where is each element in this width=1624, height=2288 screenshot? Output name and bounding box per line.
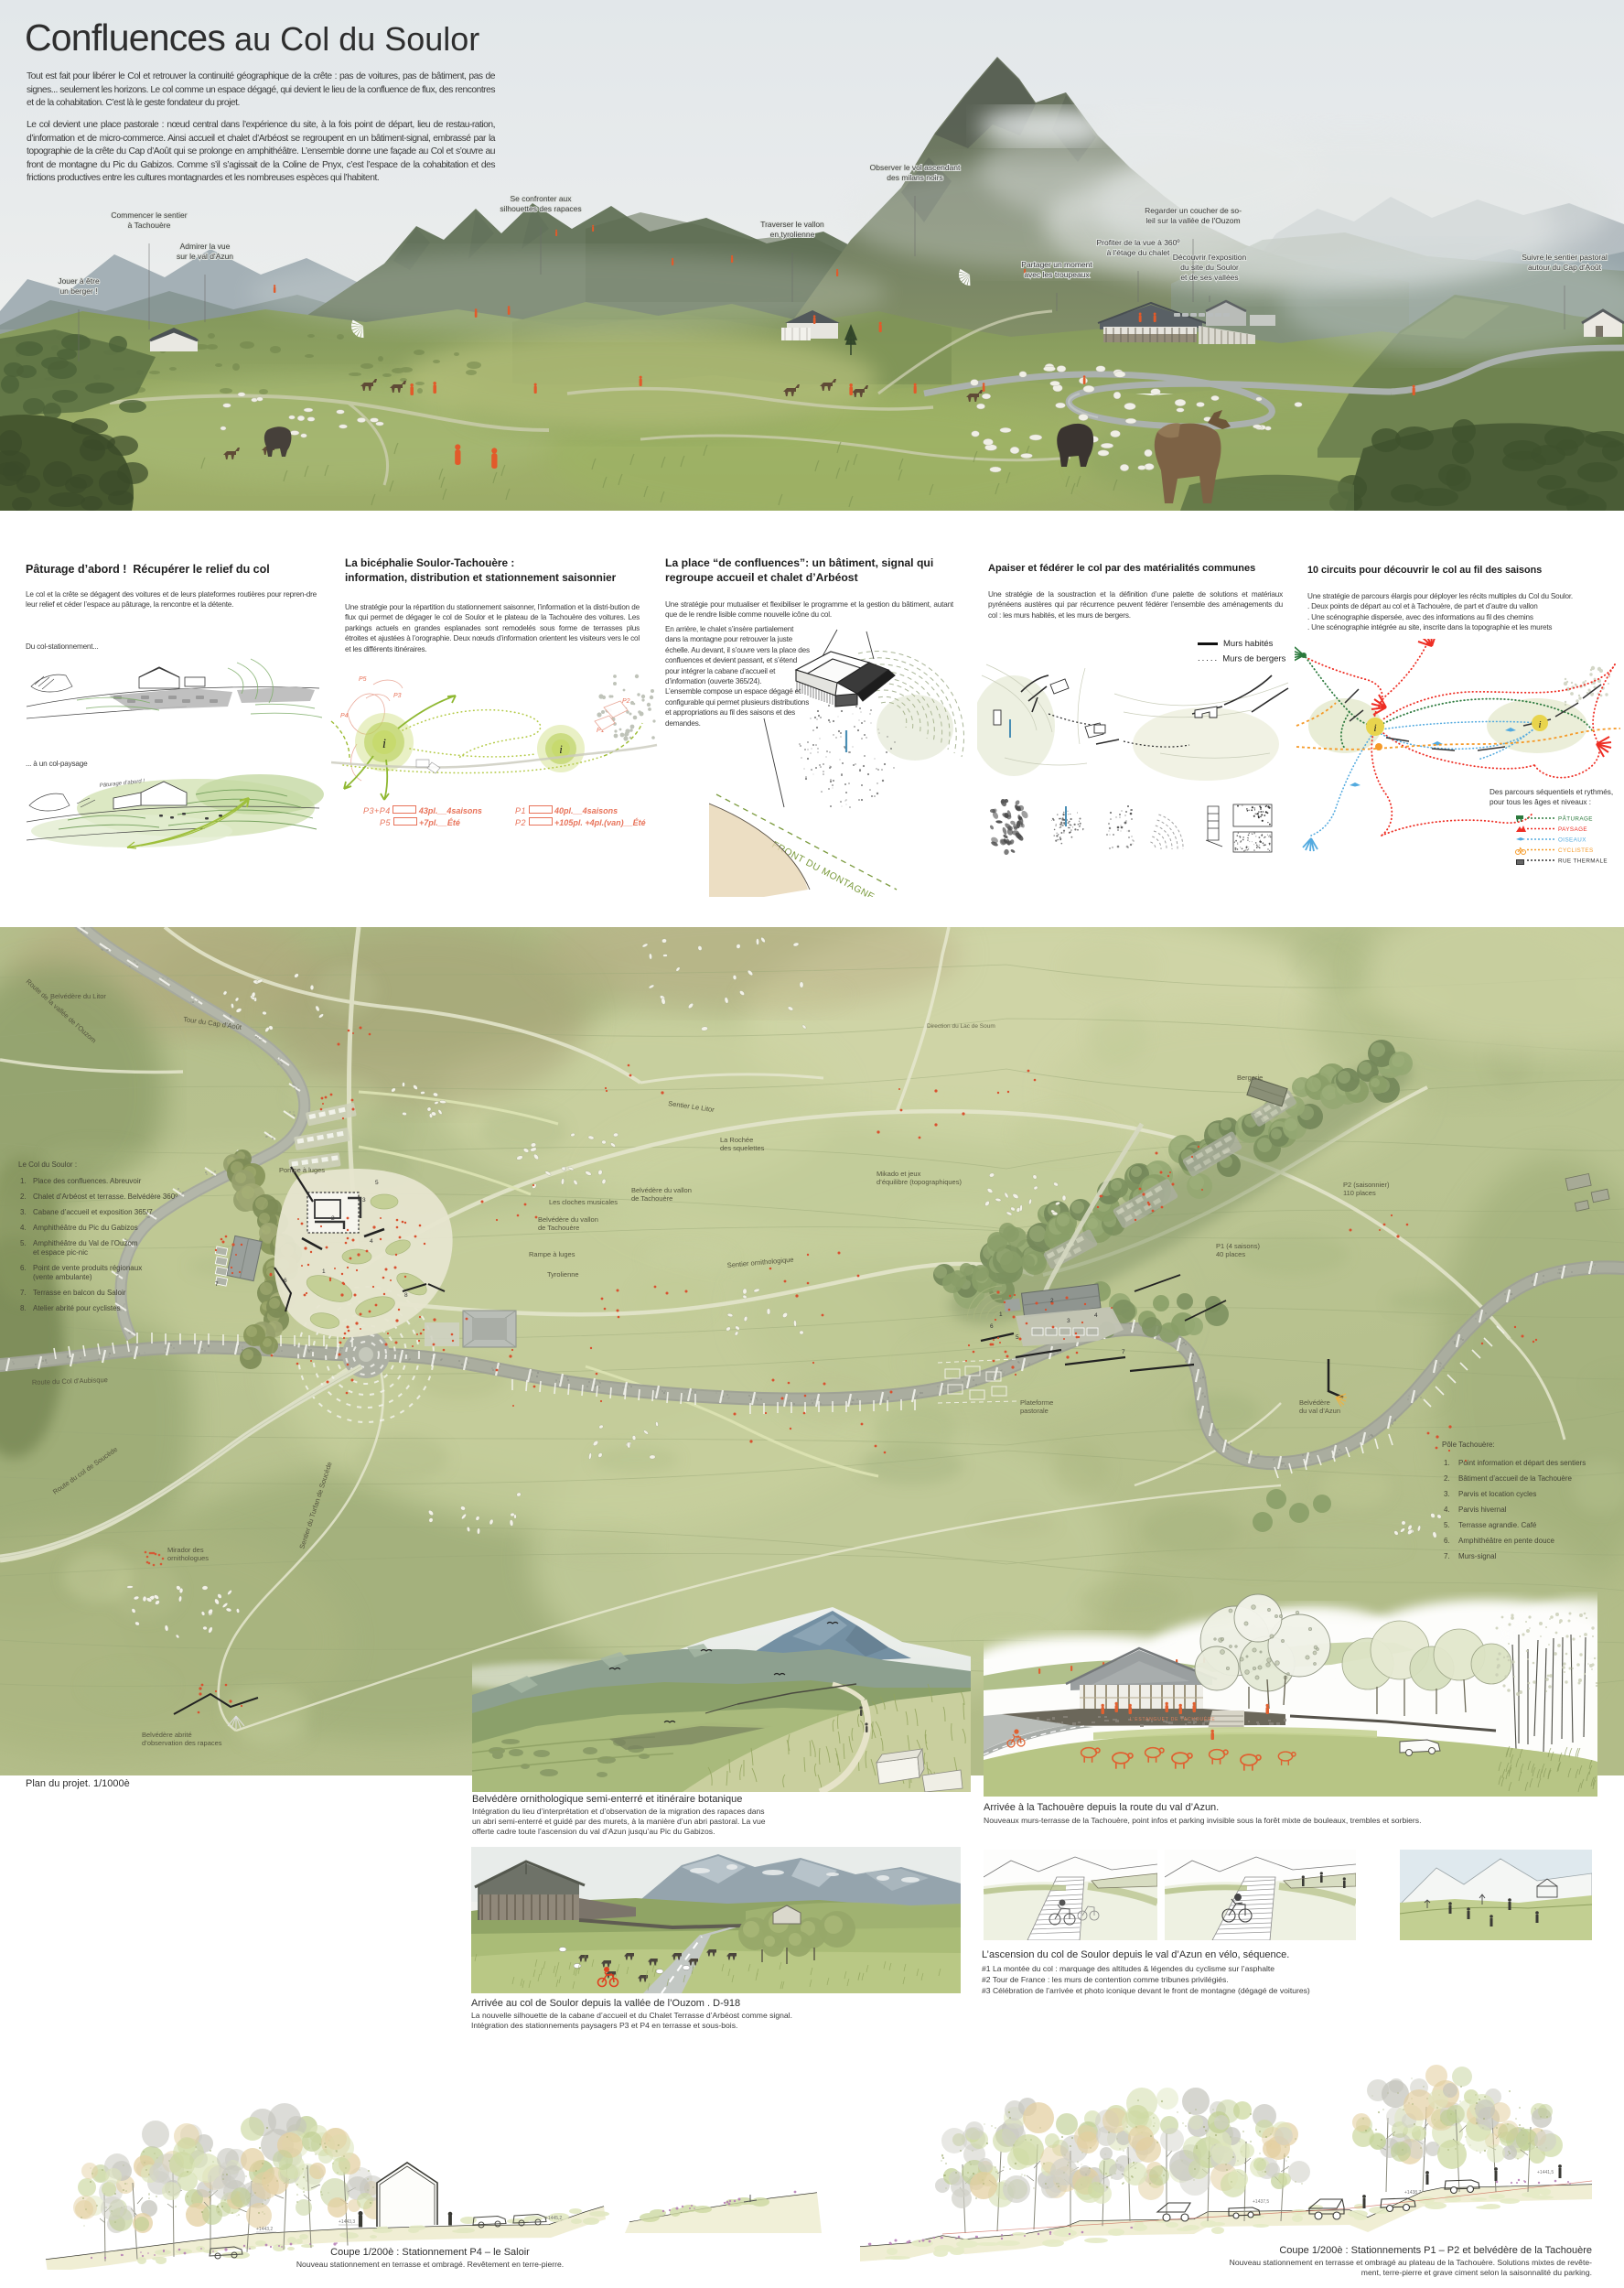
svg-text:110 places: 110 places bbox=[1343, 1189, 1376, 1197]
svg-text:8: 8 bbox=[404, 1292, 408, 1299]
svg-text:Terrasse agrandie. Café: Terrasse agrandie. Café bbox=[1458, 1521, 1537, 1529]
svg-text:L’ESTANGUET DE TACHOUÈRE: L’ESTANGUET DE TACHOUÈRE bbox=[1130, 1716, 1216, 1722]
svg-text:silhouettes des rapaces: silhouettes des rapaces bbox=[500, 204, 581, 213]
svg-text:La Rochée: La Rochée bbox=[720, 1136, 753, 1144]
svg-text:7.: 7. bbox=[20, 1289, 27, 1297]
svg-text:RUE THERMALE: RUE THERMALE bbox=[1558, 858, 1608, 865]
svg-text:Regarder un coucher de so-: Regarder un coucher de so- bbox=[1145, 206, 1242, 215]
svg-text:un berger !: un berger ! bbox=[59, 286, 97, 296]
svg-text:Profiter de la vue à 360º: Profiter de la vue à 360º bbox=[1097, 238, 1180, 247]
svg-text:3: 3 bbox=[362, 1197, 366, 1203]
svg-text:CYCLISTES: CYCLISTES bbox=[1558, 847, 1594, 854]
svg-text:en tyrolienne: en tyrolienne bbox=[770, 230, 815, 239]
svg-text:Pompe à luges: Pompe à luges bbox=[279, 1166, 325, 1174]
svg-text:à Tachouère: à Tachouère bbox=[128, 221, 171, 230]
svg-text:5: 5 bbox=[1016, 1334, 1019, 1341]
svg-text:P3: P3 bbox=[393, 693, 402, 699]
svg-text:de Tachouère: de Tachouère bbox=[538, 1224, 579, 1232]
svg-text:Parvis hivernal: Parvis hivernal bbox=[1458, 1506, 1507, 1514]
svg-text:Belvédère du Litor: Belvédère du Litor bbox=[50, 992, 106, 1000]
svg-text:2.: 2. bbox=[20, 1193, 27, 1201]
svg-text:i: i bbox=[1538, 719, 1541, 730]
svg-text:Parvis et location cycles: Parvis et location cycles bbox=[1458, 1490, 1536, 1498]
svg-text:Place des confluences. Abreuvo: Place des confluences. Abreuvoir bbox=[33, 1177, 142, 1185]
svg-text:Amphithéâtre en pente douce: Amphithéâtre en pente douce bbox=[1458, 1537, 1555, 1545]
svg-text:d’observation des rapaces: d’observation des rapaces bbox=[142, 1739, 222, 1747]
svg-text:(vente ambulante): (vente ambulante) bbox=[33, 1273, 92, 1281]
svg-text:sur le val d'Azun: sur le val d'Azun bbox=[177, 252, 233, 261]
svg-text:+1441,5: +1441,5 bbox=[1537, 2170, 1554, 2175]
svg-text:PÂTURAGE: PÂTURAGE bbox=[1558, 815, 1593, 823]
svg-text:Rampe à luges: Rampe à luges bbox=[529, 1250, 575, 1258]
svg-text:Bâtiment d’accueil de la Tacho: Bâtiment d’accueil de la Tachouère bbox=[1458, 1474, 1572, 1483]
svg-text:P2 (saisonnier): P2 (saisonnier) bbox=[1343, 1181, 1390, 1189]
svg-text:Suivre le sentier pastoral: Suivre le sentier pastoral bbox=[1522, 253, 1608, 262]
svg-text:Tyrolienne: Tyrolienne bbox=[547, 1270, 579, 1279]
svg-text:3.: 3. bbox=[20, 1208, 27, 1216]
svg-text:4.: 4. bbox=[20, 1224, 27, 1232]
svg-text:5.: 5. bbox=[20, 1239, 27, 1247]
svg-text:d’équilibre (topographiques): d’équilibre (topographiques) bbox=[877, 1178, 962, 1186]
svg-text:et de ses vallées: et de ses vallées bbox=[1180, 273, 1238, 282]
svg-text:Point de vente produits région: Point de vente produits régionaux bbox=[33, 1264, 142, 1272]
svg-text:P5: P5 bbox=[359, 676, 367, 683]
svg-text:Belvédère du vallon: Belvédère du vallon bbox=[631, 1186, 692, 1194]
svg-text:Direction du Lac de Soum: Direction du Lac de Soum bbox=[927, 1023, 995, 1030]
svg-text:2.: 2. bbox=[1444, 1474, 1450, 1483]
svg-text:avec les troupeaux: avec les troupeaux bbox=[1024, 270, 1090, 279]
svg-text:Mikado et jeux: Mikado et jeux bbox=[877, 1170, 921, 1178]
svg-text:et espace pic-nic: et espace pic-nic bbox=[33, 1248, 88, 1257]
svg-text:ornithologues: ornithologues bbox=[167, 1554, 209, 1562]
svg-text:Belvédère: Belvédère bbox=[1299, 1398, 1330, 1407]
svg-text:Belvédère abrité: Belvédère abrité bbox=[142, 1731, 192, 1739]
svg-text:autour du Cap d'Août: autour du Cap d'Août bbox=[1528, 263, 1602, 272]
svg-text:PAYSAGE: PAYSAGE bbox=[1558, 826, 1587, 833]
svg-text:7.: 7. bbox=[1444, 1552, 1450, 1560]
svg-text:Atelier abrité pour cyclistes: Atelier abrité pour cyclistes bbox=[33, 1304, 121, 1312]
svg-text:Les cloches musicales: Les cloches musicales bbox=[549, 1198, 618, 1206]
svg-text:8.: 8. bbox=[20, 1304, 27, 1312]
svg-text:+1437,5: +1437,5 bbox=[1253, 2199, 1269, 2205]
svg-text:Observer le vol ascendant: Observer le vol ascendant bbox=[870, 163, 961, 172]
svg-text:+1438,7: +1438,7 bbox=[1404, 2190, 1421, 2196]
svg-text:Chalet d’Arbéost et terrasse.: Chalet d’Arbéost et terrasse. Belvédère … bbox=[33, 1193, 177, 1201]
svg-text:leil sur la vallée de l'Ouzom: leil sur la vallée de l'Ouzom bbox=[1145, 216, 1240, 225]
svg-text:+1443,3: +1443,3 bbox=[339, 2219, 355, 2225]
svg-text:OISEAUX: OISEAUX bbox=[1558, 837, 1586, 844]
svg-text:Amphithéâtre du Val de l’Ouzom: Amphithéâtre du Val de l’Ouzom bbox=[33, 1239, 138, 1247]
svg-text:5.: 5. bbox=[1444, 1521, 1450, 1529]
svg-text:Belvédère du vallon: Belvédère du vallon bbox=[538, 1215, 598, 1224]
svg-text:des squelettes: des squelettes bbox=[720, 1144, 765, 1152]
svg-text:7: 7 bbox=[215, 1281, 219, 1288]
svg-text:7: 7 bbox=[1122, 1349, 1125, 1355]
svg-text:Terrasse en balcon du Saloir: Terrasse en balcon du Saloir bbox=[33, 1289, 126, 1297]
svg-text:P4: P4 bbox=[340, 713, 349, 719]
svg-text:6: 6 bbox=[284, 1278, 287, 1284]
svg-text:4: 4 bbox=[370, 1238, 373, 1245]
svg-text:2: 2 bbox=[1050, 1298, 1054, 1304]
svg-text:4: 4 bbox=[1094, 1312, 1098, 1319]
svg-text:6.: 6. bbox=[20, 1264, 27, 1272]
svg-text:Le Col du Soulor :: Le Col du Soulor : bbox=[18, 1160, 77, 1169]
svg-text:Admirer la vue: Admirer la vue bbox=[180, 242, 231, 251]
svg-text:Jouer à être: Jouer à être bbox=[58, 276, 100, 286]
svg-text:Murs-signal: Murs-signal bbox=[1458, 1552, 1497, 1560]
svg-text:1.: 1. bbox=[20, 1177, 27, 1185]
svg-text:4.: 4. bbox=[1444, 1506, 1450, 1514]
svg-text:Bergerie: Bergerie bbox=[1237, 1074, 1263, 1082]
svg-text:Commencer le sentier: Commencer le sentier bbox=[111, 210, 187, 220]
svg-text:Cabane d’accueil et exposition: Cabane d’accueil et exposition 365/7 bbox=[33, 1208, 153, 1216]
svg-text:2: 2 bbox=[331, 1215, 335, 1222]
svg-text:du site du Soulor: du site du Soulor bbox=[1180, 263, 1239, 272]
svg-text:Se confronter aux: Se confronter aux bbox=[510, 194, 572, 203]
svg-text:1: 1 bbox=[322, 1268, 326, 1275]
svg-text:Traverser le vallon: Traverser le vallon bbox=[760, 220, 824, 229]
svg-text:i: i bbox=[559, 742, 563, 756]
svg-text:i: i bbox=[1373, 721, 1376, 734]
svg-text:40 places: 40 places bbox=[1216, 1250, 1245, 1258]
svg-text:1.: 1. bbox=[1444, 1459, 1450, 1467]
svg-text:+1443,2: +1443,2 bbox=[256, 2227, 273, 2232]
svg-text:6.: 6. bbox=[1444, 1537, 1450, 1545]
svg-text:1: 1 bbox=[999, 1311, 1003, 1318]
svg-text:3: 3 bbox=[1067, 1318, 1070, 1324]
svg-text:P2: P2 bbox=[622, 698, 630, 705]
svg-text:pastorale: pastorale bbox=[1020, 1407, 1049, 1415]
svg-text:3.: 3. bbox=[1444, 1490, 1450, 1498]
svg-text:Amphithéâtre du Pic du Gabizos: Amphithéâtre du Pic du Gabizos bbox=[33, 1224, 138, 1232]
svg-text:à l'étage du chalet: à l'étage du chalet bbox=[1107, 248, 1170, 257]
svg-text:P1 (4 saisons): P1 (4 saisons) bbox=[1216, 1242, 1260, 1250]
svg-text:5: 5 bbox=[375, 1180, 379, 1186]
svg-text:+1445,2: +1445,2 bbox=[545, 2216, 562, 2221]
svg-text:Pôle Tachouère:: Pôle Tachouère: bbox=[1442, 1441, 1495, 1449]
svg-text:Partager un moment: Partager un moment bbox=[1021, 260, 1092, 269]
svg-text:Mirador des: Mirador des bbox=[167, 1546, 204, 1554]
svg-text:des milans noirs: des milans noirs bbox=[887, 173, 942, 182]
svg-text:i: i bbox=[382, 737, 386, 751]
svg-text:du val d’Azun: du val d’Azun bbox=[1299, 1407, 1340, 1415]
svg-text:Découvrir l'exposition: Découvrir l'exposition bbox=[1173, 253, 1247, 262]
svg-text:Plateforme: Plateforme bbox=[1020, 1398, 1053, 1407]
svg-text:de Tachouère: de Tachouère bbox=[631, 1194, 672, 1203]
svg-text:Point information et départ de: Point information et départ des sentiers bbox=[1458, 1459, 1586, 1467]
svg-text:6: 6 bbox=[990, 1323, 994, 1330]
